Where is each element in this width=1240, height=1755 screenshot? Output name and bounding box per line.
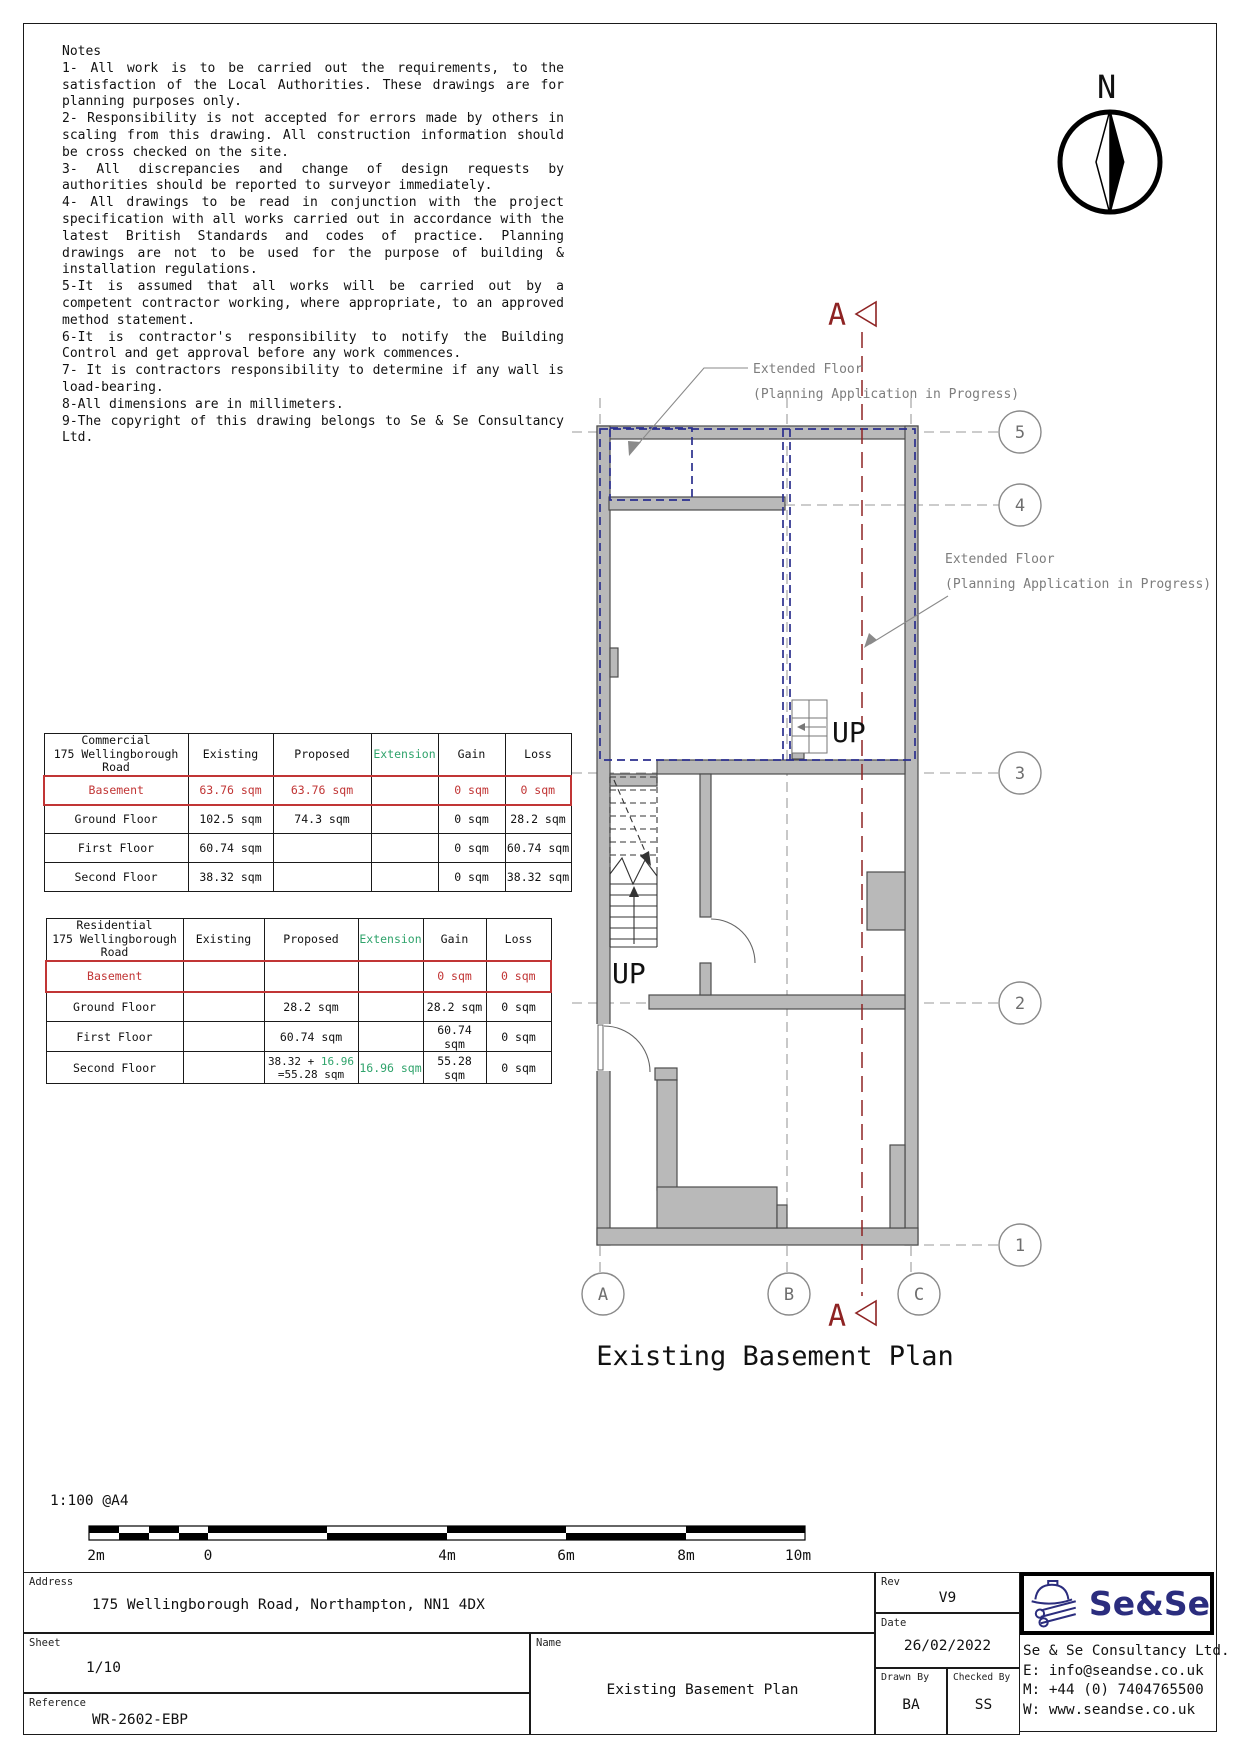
- cell-extension: [358, 961, 423, 992]
- cell-extension: [371, 776, 438, 805]
- reference-label: Reference: [29, 1697, 86, 1709]
- checkedby-label: Checked By: [953, 1672, 1010, 1683]
- rev-value: V9: [876, 1590, 1019, 1606]
- titleblock-name-box: Name Existing Basement Plan: [530, 1633, 875, 1735]
- cell-loss: 60.74 sqm: [505, 834, 571, 863]
- proposed-base: 38.32 +: [268, 1055, 321, 1068]
- note-item: 4- All drawings to be read in conjunctio…: [62, 195, 564, 279]
- cell-gain: 55.28 sqm: [423, 1052, 486, 1084]
- residential-title-line1: Residential: [47, 919, 183, 933]
- titleblock-rev-box: Rev V9: [875, 1572, 1020, 1613]
- cell-loss: 0 sqm: [486, 1052, 551, 1084]
- address-label: Address: [29, 1576, 73, 1588]
- cell-loss: 28.2 sqm: [505, 805, 571, 834]
- row-name: Basement: [46, 961, 183, 992]
- cell-gain: 60.74 sqm: [423, 1022, 486, 1052]
- commercial-table: Commercial 175 Wellingborough Road Exist…: [43, 733, 572, 892]
- cell-existing: [183, 992, 264, 1022]
- pipe-end-1: [1036, 1609, 1044, 1617]
- row-name: First Floor: [44, 834, 188, 863]
- residential-table: Residential 175 Wellingborough Road Exis…: [45, 918, 552, 1084]
- cell-loss: 0 sqm: [486, 992, 551, 1022]
- row-name: First Floor: [46, 1022, 183, 1052]
- cell-extension: [358, 1022, 423, 1052]
- address-value: 175 Wellingborough Road, Northampton, NN…: [92, 1597, 485, 1613]
- header-gain: Gain: [423, 919, 486, 961]
- cell-proposed: [273, 863, 371, 892]
- cell-extension: [371, 834, 438, 863]
- header-loss: Loss: [486, 919, 551, 961]
- header-proposed: Proposed: [273, 734, 371, 776]
- header-loss: Loss: [505, 734, 571, 776]
- company-logo-box: Se&Se: [1020, 1572, 1214, 1635]
- cell-proposed: [264, 961, 358, 992]
- cell-existing: [183, 1022, 264, 1052]
- table-row-second-floor: Second Floor 38.32 sqm 0 sqm 38.32 sqm: [44, 863, 571, 892]
- cell-existing: 60.74 sqm: [188, 834, 273, 863]
- row-name: Basement: [44, 776, 188, 805]
- cell-gain: 0 sqm: [423, 961, 486, 992]
- reference-value: WR-2602-EBP: [92, 1712, 188, 1728]
- row-name: Second Floor: [46, 1052, 183, 1084]
- note-item: 5-It is assumed that all works will be c…: [62, 279, 564, 329]
- header-extension: Extension: [371, 734, 438, 776]
- cell-proposed: 60.74 sqm: [264, 1022, 358, 1052]
- titleblock-reference-box: Reference WR-2602-EBP: [23, 1693, 530, 1735]
- cell-loss: 38.32 sqm: [505, 863, 571, 892]
- table-header-row: Commercial 175 Wellingborough Road Exist…: [44, 734, 571, 776]
- notes-title: Notes: [62, 44, 564, 61]
- date-value: 26/02/2022: [876, 1638, 1019, 1654]
- company-email: E: info@seandse.co.uk: [1023, 1662, 1230, 1682]
- cell-proposed: 74.3 sqm: [273, 805, 371, 834]
- titleblock-address-box: Address 175 Wellingborough Road, Northam…: [23, 1572, 875, 1633]
- header-existing: Existing: [183, 919, 264, 961]
- row-name: Ground Floor: [46, 992, 183, 1022]
- sheet-value: 1/10: [86, 1660, 121, 1676]
- company-info: Se & Se Consultancy Ltd. E: info@seandse…: [1023, 1642, 1230, 1720]
- rev-label: Rev: [881, 1576, 900, 1588]
- note-item: 6-It is contractor's responsibility to n…: [62, 330, 564, 364]
- table-row-ground-floor: Ground Floor 28.2 sqm 28.2 sqm 0 sqm: [46, 992, 551, 1022]
- cell-loss: 0 sqm: [486, 961, 551, 992]
- header-proposed: Proposed: [264, 919, 358, 961]
- cell-existing: 63.76 sqm: [188, 776, 273, 805]
- titleblock-drawnby-box: Drawn By BA: [875, 1668, 947, 1735]
- residential-title-cell: Residential 175 Wellingborough Road: [46, 919, 183, 961]
- header-gain: Gain: [438, 734, 505, 776]
- titleblock-sheet-box: Sheet 1/10: [23, 1633, 530, 1693]
- proposed-total: =55.28 sqm: [278, 1068, 344, 1081]
- note-item: 2- Responsibility is not accepted for er…: [62, 111, 564, 161]
- table-row-ground-floor: Ground Floor 102.5 sqm 74.3 sqm 0 sqm 28…: [44, 805, 571, 834]
- checkedby-value: SS: [948, 1697, 1019, 1713]
- row-name: Ground Floor: [44, 805, 188, 834]
- commercial-title-cell: Commercial 175 Wellingborough Road: [44, 734, 188, 776]
- note-item: 3- All discrepancies and change of desig…: [62, 162, 564, 196]
- cell-gain: 0 sqm: [438, 863, 505, 892]
- cell-existing: [183, 961, 264, 992]
- proposed-extension-part: 16.96: [321, 1055, 354, 1068]
- note-item: 7- It is contractors responsibility to d…: [62, 363, 564, 397]
- company-website: W: www.seandse.co.uk: [1023, 1701, 1230, 1721]
- row-name: Second Floor: [44, 863, 188, 892]
- drawnby-label: Drawn By: [881, 1672, 929, 1683]
- note-item: 9-The copyright of this drawing belongs …: [62, 414, 564, 448]
- company-phone: M: +44 (0) 7404765500: [1023, 1681, 1230, 1701]
- cell-extension: [358, 992, 423, 1022]
- table-row-second-floor: Second Floor 38.32 + 16.96 =55.28 sqm 16…: [46, 1052, 551, 1084]
- cell-proposed: 63.76 sqm: [273, 776, 371, 805]
- note-item: 8-All dimensions are in millimeters.: [62, 397, 564, 414]
- cell-loss: 0 sqm: [505, 776, 571, 805]
- hardhat-dome: [1035, 1584, 1068, 1599]
- date-label: Date: [881, 1617, 906, 1629]
- cell-loss: 0 sqm: [486, 1022, 551, 1052]
- logo-text: Se&Se: [1089, 1584, 1210, 1623]
- drawing-name-value: Existing Basement Plan: [531, 1682, 874, 1698]
- name-label: Name: [536, 1637, 561, 1649]
- cell-extension: 16.96 sqm: [358, 1052, 423, 1084]
- hardhat-pipes-icon: [1028, 1577, 1085, 1631]
- table-row-basement: Basement 0 sqm 0 sqm: [46, 961, 551, 992]
- company-name: Se & Se Consultancy Ltd.: [1023, 1642, 1230, 1662]
- cell-extension: [371, 863, 438, 892]
- cell-extension: [371, 805, 438, 834]
- table-row-first-floor: First Floor 60.74 sqm 60.74 sqm 0 sqm: [46, 1022, 551, 1052]
- cell-gain: 28.2 sqm: [423, 992, 486, 1022]
- cell-gain: 0 sqm: [438, 776, 505, 805]
- commercial-title-line2: 175 Wellingborough Road: [45, 748, 188, 775]
- drawnby-value: BA: [876, 1697, 946, 1713]
- cell-proposed: [273, 834, 371, 863]
- cell-gain: 0 sqm: [438, 834, 505, 863]
- sheet-label: Sheet: [29, 1637, 61, 1649]
- table-row-basement: Basement 63.76 sqm 63.76 sqm 0 sqm 0 sqm: [44, 776, 571, 805]
- cell-existing: [183, 1052, 264, 1084]
- note-item: 1- All work is to be carried out the req…: [62, 61, 564, 111]
- cell-existing: 38.32 sqm: [188, 863, 273, 892]
- drawing-sheet: A A Extended Floor (Planning Application…: [0, 0, 1240, 1755]
- cell-proposed: 28.2 sqm: [264, 992, 358, 1022]
- table-header-row: Residential 175 Wellingborough Road Exis…: [46, 919, 551, 961]
- header-existing: Existing: [188, 734, 273, 776]
- table-row-first-floor: First Floor 60.74 sqm 0 sqm 60.74 sqm: [44, 834, 571, 863]
- header-extension: Extension: [358, 919, 423, 961]
- commercial-title-line1: Commercial: [45, 734, 188, 748]
- cell-existing: 102.5 sqm: [188, 805, 273, 834]
- residential-title-line2: 175 Wellingborough Road: [47, 933, 183, 960]
- notes-block: Notes 1- All work is to be carried out t…: [62, 44, 564, 447]
- cell-gain: 0 sqm: [438, 805, 505, 834]
- cell-proposed-sum: 38.32 + 16.96 =55.28 sqm: [264, 1052, 358, 1084]
- titleblock-checkedby-box: Checked By SS: [947, 1668, 1020, 1735]
- titleblock-date-box: Date 26/02/2022: [875, 1613, 1020, 1668]
